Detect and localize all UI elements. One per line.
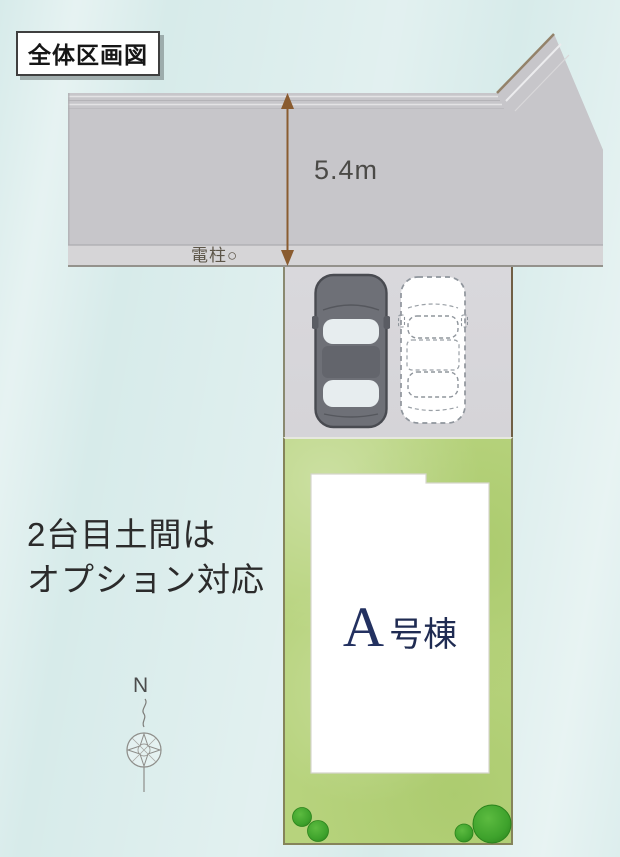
plot-plan-canvas: 全体区画図 5.4m 電柱○ — [0, 0, 620, 857]
white-car-outline-icon — [398, 274, 468, 426]
tree-icons — [285, 439, 515, 847]
compass: N — [118, 674, 172, 794]
parking-area — [283, 267, 513, 437]
option-note: 2台目土間は オプション対応 — [27, 513, 265, 603]
plot-plan-title: 全体区画図 — [16, 31, 160, 76]
bush-icon — [455, 824, 473, 842]
tree-icon — [473, 805, 511, 843]
dark-car-icon — [312, 272, 390, 430]
compass-north-label: N — [133, 674, 172, 698]
bush-icon — [308, 821, 329, 842]
option-note-line2: オプション対応 — [27, 558, 265, 603]
grass-plot: A号棟 — [283, 437, 513, 845]
road-width-label: 5.4m — [314, 155, 378, 186]
bush-icon — [293, 808, 312, 827]
utility-pole-label: 電柱○ — [191, 241, 238, 266]
compass-rose-icon — [118, 698, 172, 793]
option-note-line1: 2台目土間は — [27, 513, 265, 558]
